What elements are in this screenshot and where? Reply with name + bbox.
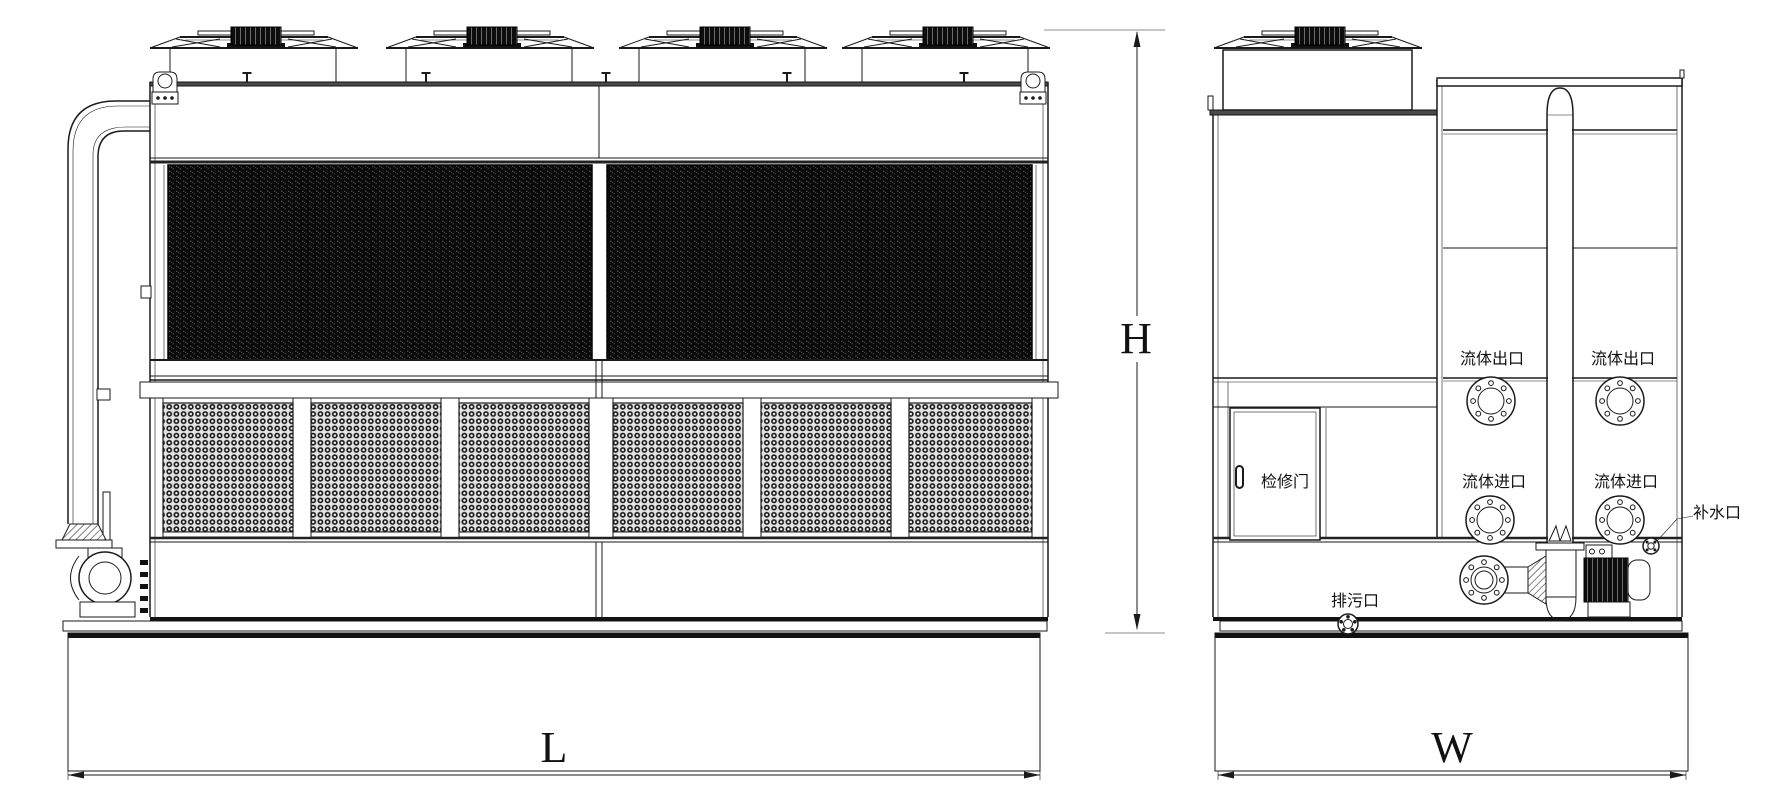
front-louver-section bbox=[163, 398, 1032, 537]
fluid-outlet-left-label: 流体出口 bbox=[1460, 350, 1524, 368]
coil-panel-right bbox=[607, 165, 1032, 360]
front-basin bbox=[150, 538, 1048, 617]
front-fan-array bbox=[150, 27, 1050, 82]
front-mid-bands bbox=[140, 360, 1058, 398]
fan-3 bbox=[619, 27, 827, 82]
front-inlet-pipe bbox=[56, 101, 151, 548]
makeup-water-port: 补水口 bbox=[1643, 504, 1741, 554]
louver-panel-6 bbox=[909, 398, 1032, 537]
dim-height: H bbox=[1044, 30, 1165, 633]
fluid-outlet-right-label: 流体出口 bbox=[1591, 350, 1655, 368]
deck-bolts bbox=[243, 73, 969, 82]
side-view: 检修门 流体出口 流体出口 流体进口 bbox=[1208, 27, 1741, 780]
fluid-outlet-left-flange bbox=[1467, 377, 1515, 425]
louver-panel-2 bbox=[311, 398, 441, 537]
lifting-lug-right bbox=[1020, 72, 1046, 104]
louver-panel-5 bbox=[761, 398, 891, 537]
fluid-inlet-left: 流体进口 bbox=[1462, 473, 1526, 544]
height-dimension-label: H bbox=[1120, 314, 1152, 363]
drawing-canvas: L H bbox=[0, 0, 1773, 787]
fluid-inlet-right: 流体进口 bbox=[1594, 473, 1658, 544]
front-spray-pump bbox=[71, 548, 149, 617]
front-view: L H bbox=[56, 27, 1165, 780]
fluid-inlet-left-label: 流体进口 bbox=[1462, 473, 1526, 491]
fluid-inlet-left-flange bbox=[1466, 496, 1514, 544]
cooling-tower-drawing: L H bbox=[0, 0, 1773, 787]
fan-1 bbox=[150, 27, 358, 82]
fluid-inlet-right-flange bbox=[1596, 496, 1644, 544]
front-coil-section bbox=[164, 165, 1036, 360]
pump-suction-flange bbox=[1460, 556, 1508, 604]
drain-label: 排污口 bbox=[1331, 592, 1379, 610]
coil-panel-left bbox=[168, 165, 592, 360]
access-door-label: 检修门 bbox=[1261, 473, 1309, 491]
louver-panel-1 bbox=[163, 398, 293, 537]
louver-panel-4 bbox=[613, 398, 743, 537]
length-dimension-label: L bbox=[541, 723, 568, 772]
louver-panel-3 bbox=[459, 398, 589, 537]
fluid-outlet-right-flange bbox=[1596, 377, 1644, 425]
circulation-pump bbox=[1460, 545, 1650, 620]
riser-pipe bbox=[1536, 88, 1584, 550]
fluid-outlet-left: 流体出口 bbox=[1460, 350, 1524, 425]
fan-4 bbox=[842, 27, 1050, 82]
makeup-water-flange bbox=[1643, 538, 1659, 554]
side-fan bbox=[1214, 27, 1422, 110]
fan-2 bbox=[386, 27, 594, 82]
lifting-lug-left bbox=[152, 72, 178, 104]
access-door: 检修门 bbox=[1230, 408, 1320, 540]
makeup-water-label: 补水口 bbox=[1693, 504, 1741, 522]
fluid-outlet-right: 流体出口 bbox=[1591, 350, 1655, 425]
fluid-inlet-right-label: 流体进口 bbox=[1594, 473, 1658, 491]
front-plenum bbox=[150, 86, 1048, 162]
width-dimension-label: W bbox=[1431, 723, 1473, 772]
